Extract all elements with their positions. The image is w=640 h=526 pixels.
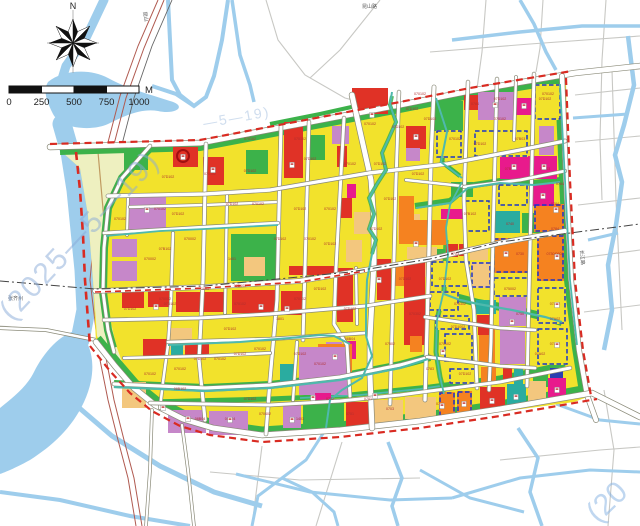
svg-text:0701: 0701 [346,412,354,416]
svg-text:070102: 070102 [324,207,336,211]
svg-text:0703: 0703 [451,252,459,256]
svg-text:07D102: 07D102 [474,142,487,146]
svg-text:07B102: 07B102 [159,247,171,251]
svg-text:0784: 0784 [551,227,559,231]
svg-text:07A02: 07A02 [550,317,560,321]
svg-text:1000: 1000 [128,97,149,108]
svg-text:070002: 070002 [184,237,196,241]
svg-text:07D102: 07D102 [244,397,257,401]
svg-text:500: 500 [66,97,82,108]
svg-text:07D1002: 07D1002 [451,325,466,329]
svg-text:07D102: 07D102 [324,242,337,246]
svg-text:0783: 0783 [426,367,434,371]
svg-text:750: 750 [99,97,115,108]
svg-text:0784: 0784 [551,202,559,206]
svg-text:070102: 070102 [234,302,246,306]
svg-text:07D102: 07D102 [234,284,247,288]
svg-text:250: 250 [34,97,50,108]
svg-text:08B04: 08B04 [195,417,205,421]
svg-text:07D102: 07D102 [194,357,207,361]
svg-text:070102: 070102 [154,207,166,211]
svg-text:07D102: 07D102 [539,97,552,101]
svg-text:07D102: 07D102 [274,237,287,241]
svg-text:070102: 070102 [144,372,156,376]
svg-text:070102: 070102 [214,357,226,361]
svg-text:昆山路: 昆山路 [362,3,377,10]
svg-text:07D102: 07D102 [459,372,472,376]
svg-text:07D102: 07D102 [162,175,175,179]
svg-text:070102: 070102 [364,122,376,126]
svg-text:M: M [145,85,153,96]
svg-text:08B04: 08B04 [345,337,355,341]
svg-text:N: N [70,1,77,11]
svg-text:07D102: 07D102 [314,287,327,291]
svg-text:1401: 1401 [228,257,236,261]
svg-text:07D102: 07D102 [234,352,247,356]
svg-text:075002: 075002 [504,287,516,291]
svg-text:07D102: 07D102 [439,277,452,281]
svg-text:08B102: 08B102 [174,387,186,391]
svg-text:070102: 070102 [252,202,264,206]
svg-text:07D102: 07D102 [224,327,237,331]
svg-text:07D102: 07D102 [304,157,317,161]
svg-text:0701: 0701 [364,397,372,401]
svg-text:070402: 070402 [259,412,271,416]
svg-text:070002: 070002 [144,257,156,261]
svg-text:07D102: 07D102 [384,197,397,201]
svg-text:07D102: 07D102 [294,352,307,356]
svg-text:1403: 1403 [296,417,304,421]
svg-text:070102: 070102 [414,92,426,96]
svg-text:1801: 1801 [276,317,284,321]
svg-text:070002: 070002 [159,297,171,301]
svg-text:07B03: 07B03 [515,137,525,141]
svg-text:070102: 070102 [174,367,186,371]
svg-text:07D102: 07D102 [424,117,437,121]
svg-text:07D102: 07D102 [244,169,257,173]
svg-text:07D102: 07D102 [406,107,419,111]
svg-text:1801: 1801 [201,287,209,291]
svg-text:07D102: 07D102 [344,307,357,311]
svg-text:0740: 0740 [506,222,514,226]
svg-text:长江路: 长江路 [578,250,586,266]
svg-text:07D102: 07D102 [392,125,405,129]
svg-text:0782: 0782 [326,397,334,401]
svg-text:07D102: 07D102 [494,97,507,101]
svg-text:07D102: 07D102 [172,212,185,216]
svg-text:070102: 070102 [494,117,506,121]
svg-text:07D102: 07D102 [226,202,239,206]
svg-text:0784: 0784 [471,102,479,106]
svg-text:070102: 070102 [254,347,266,351]
svg-text:0750: 0750 [516,312,524,316]
svg-text:07D102: 07D102 [164,302,177,306]
svg-text:07B102: 07B102 [464,212,476,216]
svg-text:0: 0 [6,97,11,108]
svg-text:07502: 07502 [385,342,395,346]
svg-text:07D102: 07D102 [124,307,137,311]
svg-text:070102: 070102 [314,362,326,366]
svg-text:070102: 070102 [449,137,461,141]
svg-text:0730: 0730 [516,252,524,256]
svg-text:070102: 070102 [244,137,256,141]
svg-text:0703: 0703 [386,407,394,411]
svg-text:0784: 0784 [556,182,564,186]
svg-text:070102: 070102 [344,162,356,166]
svg-text:070302: 070302 [409,312,421,316]
svg-text:07D102: 07D102 [412,172,425,176]
svg-text:070102: 070102 [542,92,554,96]
svg-text:07D102: 07D102 [399,277,412,281]
svg-text:07D102: 07D102 [294,207,307,211]
svg-text:070102: 070102 [304,237,316,241]
svg-text:070102: 070102 [294,297,306,301]
svg-text:07D102: 07D102 [370,227,383,231]
svg-text:070102: 070102 [294,137,306,141]
svg-text:07A02: 07A02 [535,352,545,356]
svg-text:070102: 070102 [439,342,451,346]
svg-text:070302: 070302 [454,302,466,306]
svg-text:07D102: 07D102 [374,162,387,166]
